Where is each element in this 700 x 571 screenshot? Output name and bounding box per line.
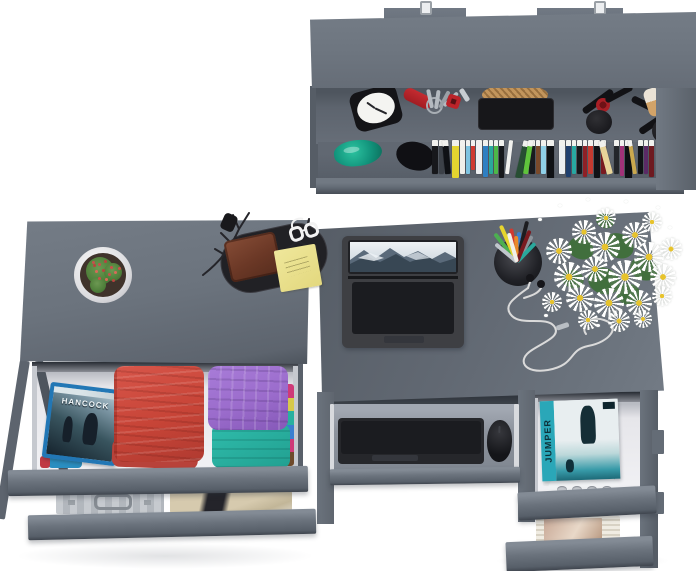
pen-fan [515, 214, 521, 262]
laptop-wallpaper [350, 242, 456, 272]
sticky-notes [274, 244, 323, 293]
book [536, 140, 540, 174]
cover-badge [603, 402, 615, 409]
briefcase-latch [144, 500, 151, 505]
book [588, 140, 593, 174]
daisy-flower [542, 292, 562, 312]
folded-purple-shirt [208, 366, 288, 430]
book [471, 140, 475, 170]
briefcase-handle [94, 494, 132, 510]
cactus-spines [92, 261, 95, 264]
keyboard-keys [341, 421, 481, 454]
book [505, 140, 513, 174]
cover-figure [566, 459, 574, 472]
dvd-case-jumper: JUMPER [540, 399, 621, 482]
mount-hook [594, 1, 606, 15]
reading-glasses [286, 213, 324, 249]
book [483, 140, 488, 177]
daisy-flower [566, 284, 594, 312]
book [541, 140, 546, 174]
floor-shadow [15, 543, 315, 569]
dvd-cover [554, 399, 621, 481]
book [547, 140, 554, 179]
daisy-flower [546, 238, 572, 264]
book [494, 140, 498, 174]
daisy-flower [634, 310, 652, 328]
book [452, 140, 459, 178]
book [489, 140, 493, 174]
book [499, 140, 504, 178]
cover-figure [62, 416, 74, 443]
book [559, 140, 565, 174]
cover-figure [579, 406, 595, 445]
cactus [90, 277, 106, 293]
book [620, 140, 624, 176]
briefcase-latch [68, 500, 75, 505]
daisy-flower [642, 212, 662, 232]
dvd-title: JUMPER [542, 419, 554, 463]
handwriting [284, 256, 311, 277]
petal-speck [666, 256, 670, 259]
book [614, 140, 619, 174]
folded-red-towels [114, 366, 204, 462]
laptop-screen-bezel [348, 240, 458, 274]
media-drawer-front-2 [505, 536, 653, 571]
cactus [104, 263, 122, 281]
petal-speck [656, 206, 660, 209]
furniture-render: HANCOCK [0, 0, 700, 571]
dresser-drawer-front-2 [28, 509, 316, 541]
dresser-drawer-front-1 [8, 466, 308, 496]
book [572, 140, 576, 174]
flower-bouquet [538, 198, 672, 332]
cover-figure [82, 412, 100, 445]
laptop-spacebar [384, 336, 424, 343]
wall-notch [652, 430, 664, 454]
tray-rail [330, 404, 334, 470]
daisy-flower [596, 208, 616, 228]
cactus-pot [74, 247, 132, 303]
mount-hook [420, 1, 432, 15]
book [577, 140, 582, 174]
petal-speck [668, 226, 672, 229]
media-drawer-front-1 [517, 485, 656, 520]
book [583, 140, 587, 177]
black-tray [478, 98, 554, 130]
book [466, 140, 470, 174]
book [649, 140, 654, 177]
daisy-flower [652, 286, 672, 306]
book [566, 140, 571, 177]
petal-speck [624, 200, 628, 203]
laptop-keyboard [352, 282, 454, 334]
drawer-slide-rail [32, 366, 37, 470]
petal-speck [538, 218, 542, 221]
wireless-keyboard [338, 418, 484, 464]
book [638, 140, 643, 174]
keyboard-spacebar [372, 455, 418, 461]
petal-speck [596, 324, 600, 327]
daisy-flower [578, 310, 598, 330]
daisy-flower [582, 256, 608, 282]
laptop-hinge [348, 276, 458, 279]
shelf-right-side [656, 80, 696, 190]
laptop [342, 236, 464, 348]
petal-speck [638, 320, 642, 323]
tray-rail [514, 404, 519, 470]
book [432, 140, 438, 174]
daisy-flower [608, 310, 630, 332]
aluminum-briefcase [56, 492, 164, 514]
book [460, 140, 465, 174]
petal-speck [544, 314, 548, 317]
daisy-flower [660, 238, 682, 260]
shelf-front-lip [316, 178, 684, 194]
petal-speck [558, 204, 562, 207]
tray-front-edge [330, 467, 520, 486]
powder-pad [586, 110, 612, 134]
folded-teal-shirt [212, 424, 290, 468]
book [644, 140, 648, 174]
book [476, 140, 482, 174]
shelf-top-board [310, 12, 696, 88]
petal-speck [586, 198, 590, 201]
